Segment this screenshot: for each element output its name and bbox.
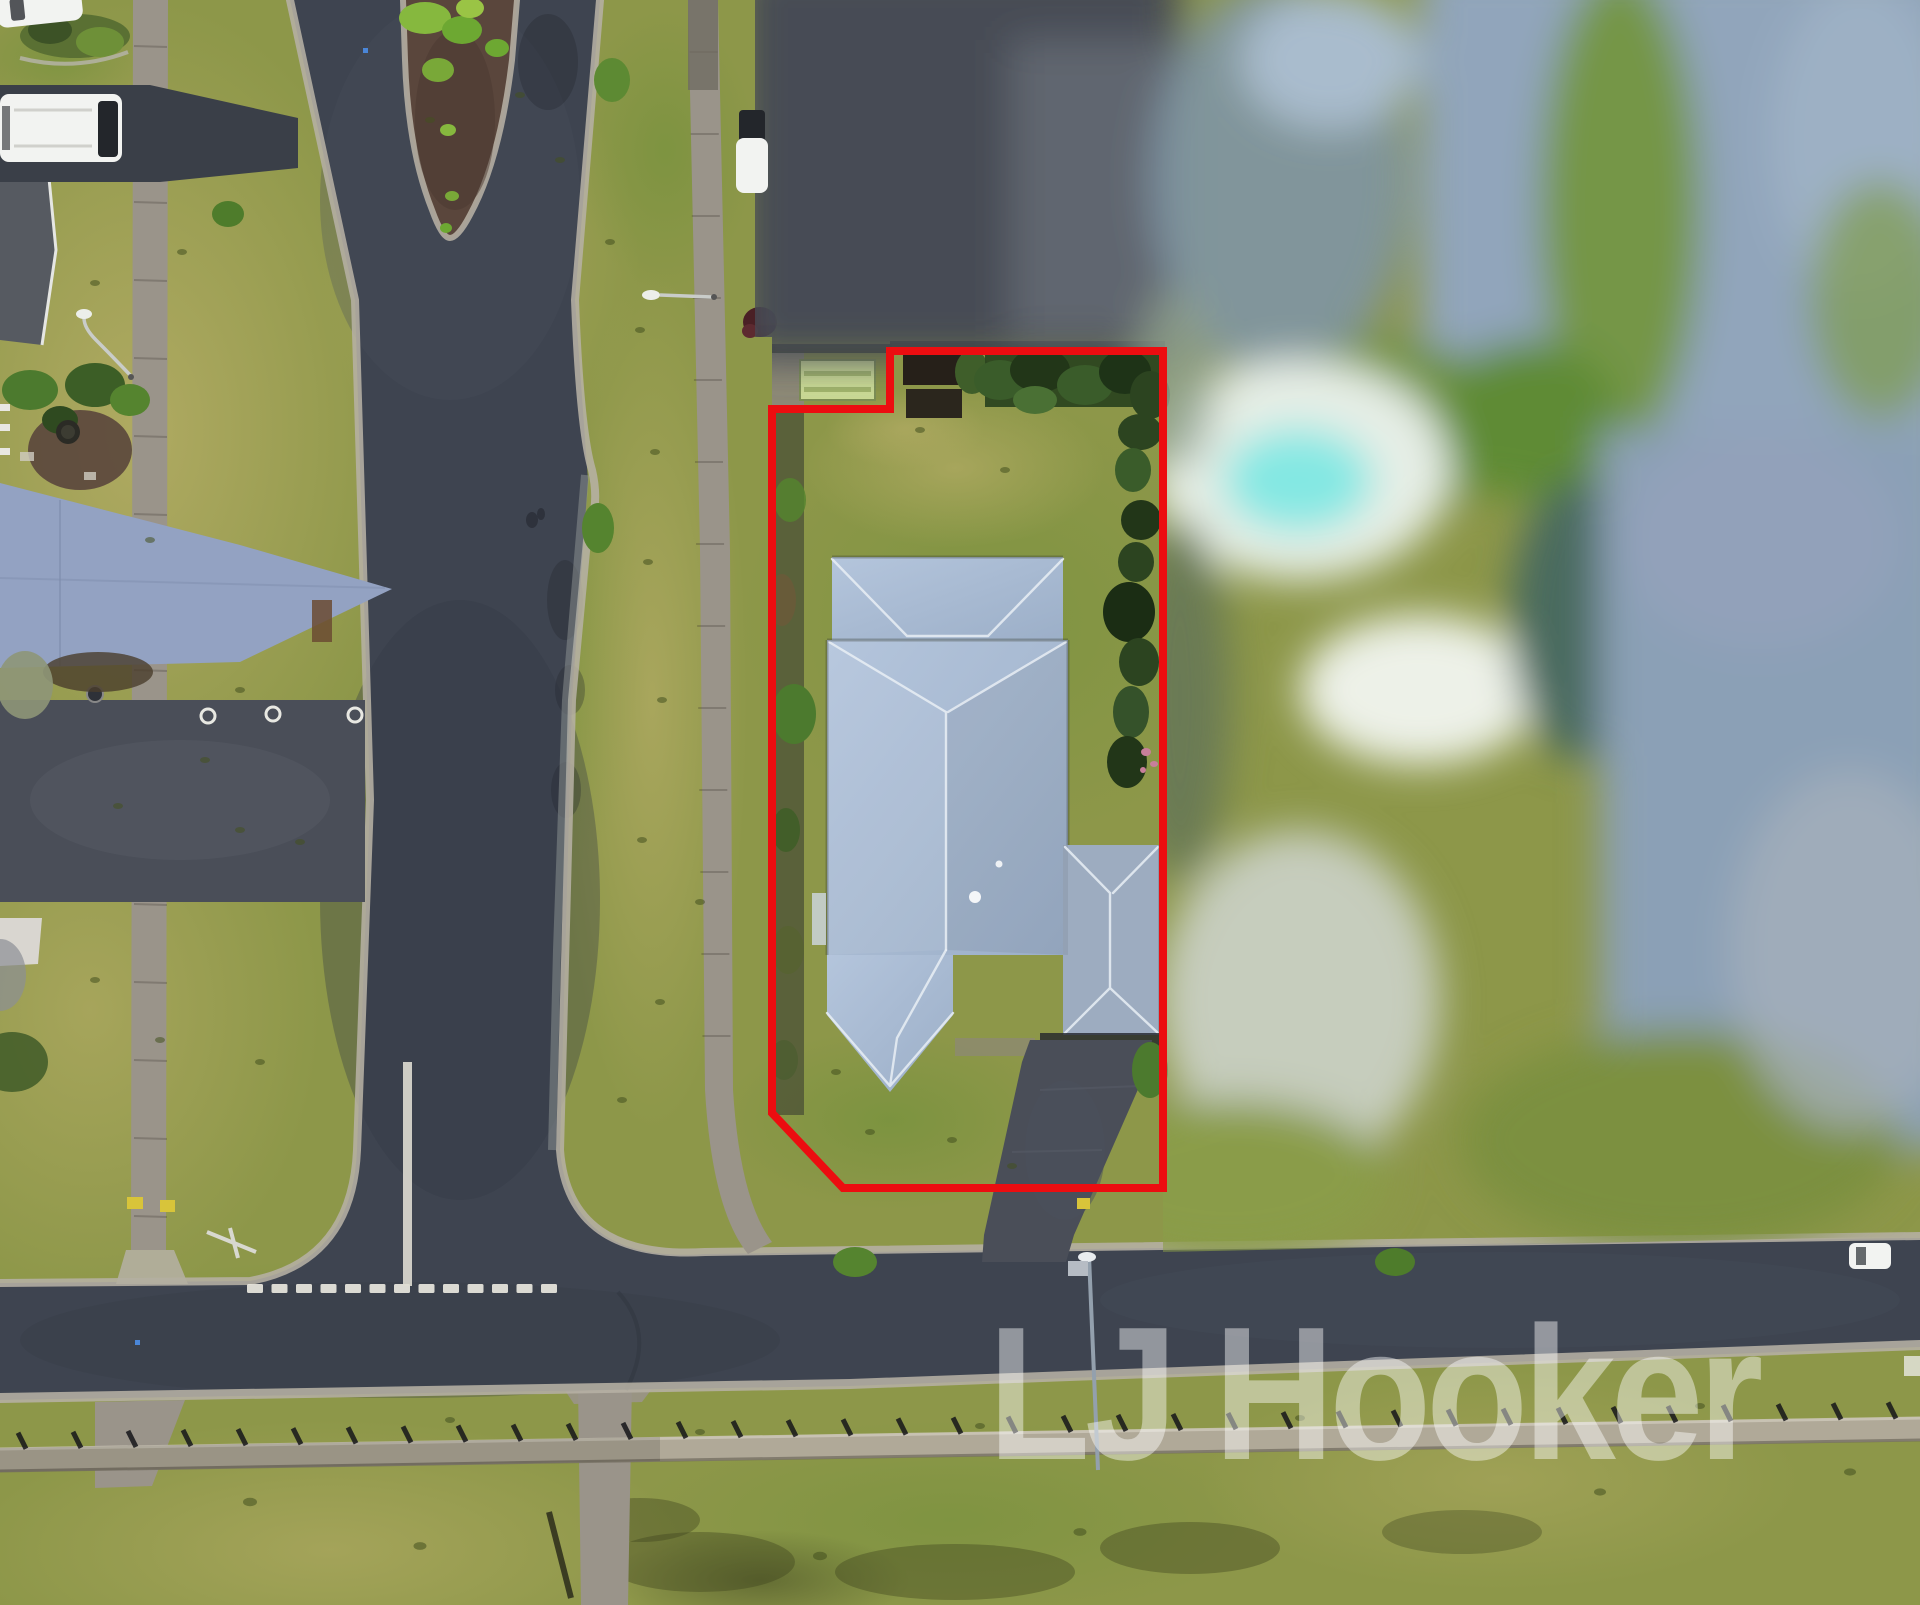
skylight <box>812 893 826 945</box>
lamp-head <box>642 290 660 300</box>
hedge-dark <box>43 652 153 692</box>
pavement-marker-blue <box>135 1340 140 1345</box>
white-car-neighbor <box>736 110 768 193</box>
path-shadow <box>688 0 718 90</box>
watermark: LJ Hooker <box>988 1287 1761 1499</box>
front-path <box>955 1038 1035 1056</box>
center-line <box>403 1062 412 1286</box>
white-car-road <box>1849 1243 1891 1269</box>
driveway-grey <box>0 686 365 902</box>
verge-tree <box>212 201 244 227</box>
roof-vent <box>969 891 981 903</box>
shed <box>800 360 875 400</box>
aerial-photo-canvas: LJ Hooker <box>0 0 1920 1605</box>
letterbox <box>312 600 332 642</box>
flowers <box>1141 748 1151 756</box>
footpath-south <box>578 1382 632 1605</box>
hydrant-marker <box>127 1197 143 1209</box>
rear-roof-wing <box>832 557 1063 640</box>
right-edge-object <box>1904 1356 1920 1376</box>
street-tree <box>1375 1248 1415 1276</box>
garage-roof <box>1063 845 1160 1035</box>
street-tree2 <box>833 1247 877 1277</box>
verge-shrub <box>594 58 630 102</box>
lamp-head <box>76 309 92 319</box>
aerial-photo: LJ Hooker <box>0 0 1920 1605</box>
pool-blur <box>1223 428 1373 532</box>
verge-shrub2 <box>582 503 614 553</box>
utility-box <box>1068 1261 1088 1276</box>
pavement-marker-blue2 <box>363 48 368 53</box>
roof-vent-small <box>996 861 1003 868</box>
watermark-text: LJ Hooker <box>988 1287 1761 1499</box>
lamp-head <box>1078 1252 1096 1262</box>
white-van <box>0 94 122 162</box>
fence-post <box>0 404 10 411</box>
